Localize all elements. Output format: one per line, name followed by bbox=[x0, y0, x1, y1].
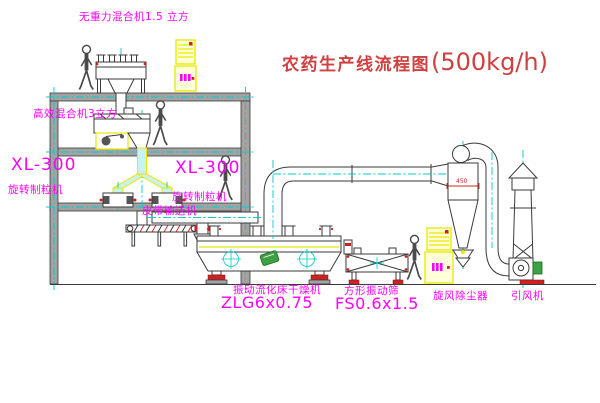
label-granulator-left-name: 旋转制粒机 bbox=[8, 185, 63, 196]
label-induced-draft-fan: 引风机 bbox=[511, 291, 544, 302]
gravity-mixer-machine bbox=[96, 48, 147, 115]
page-title: 农药生产线流程图 (500kg/h) bbox=[282, 48, 548, 76]
label-granulator-right-model: XL-300 bbox=[175, 160, 240, 177]
control-cabinet-icon bbox=[175, 40, 196, 91]
label-high-efficiency-mixer: 高效混合机3立方 bbox=[33, 109, 117, 120]
label-sieve-model: FS0.6x1.5 bbox=[335, 296, 419, 312]
title-text: 农药生产线流程图 bbox=[282, 50, 430, 75]
person-icon bbox=[407, 235, 421, 279]
person-icon bbox=[153, 101, 167, 145]
label-cyclone: 旋风除尘器 bbox=[433, 291, 488, 302]
label-cyclone-dimension: 450 bbox=[456, 179, 467, 185]
control-cabinet-icon bbox=[425, 228, 453, 283]
flow-diagram-canvas: 农药生产线流程图 (500kg/h) 无重力混合机1.5 立方 高效混合机3立方… bbox=[0, 0, 600, 403]
label-belt-conveyor: 皮带输送机 bbox=[142, 206, 197, 217]
vibrating-sieve-machine bbox=[344, 240, 408, 285]
fluid-bed-dryer-machine bbox=[197, 226, 341, 284]
label-dryer-model: ZLG6x0.75 bbox=[221, 295, 313, 311]
label-granulator-right-name: 旋转制粒机 bbox=[172, 192, 227, 203]
granulator-left-machine bbox=[100, 182, 137, 212]
title-capacity: (500kg/h) bbox=[431, 48, 548, 76]
y-splitter-pipe bbox=[113, 174, 172, 188]
induced-draft-fan-machine bbox=[509, 258, 544, 285]
label-gravity-mixer: 无重力混合机1.5 立方 bbox=[79, 12, 189, 23]
person-icon bbox=[79, 45, 93, 89]
label-granulator-left-model: XL-300 bbox=[11, 157, 76, 174]
